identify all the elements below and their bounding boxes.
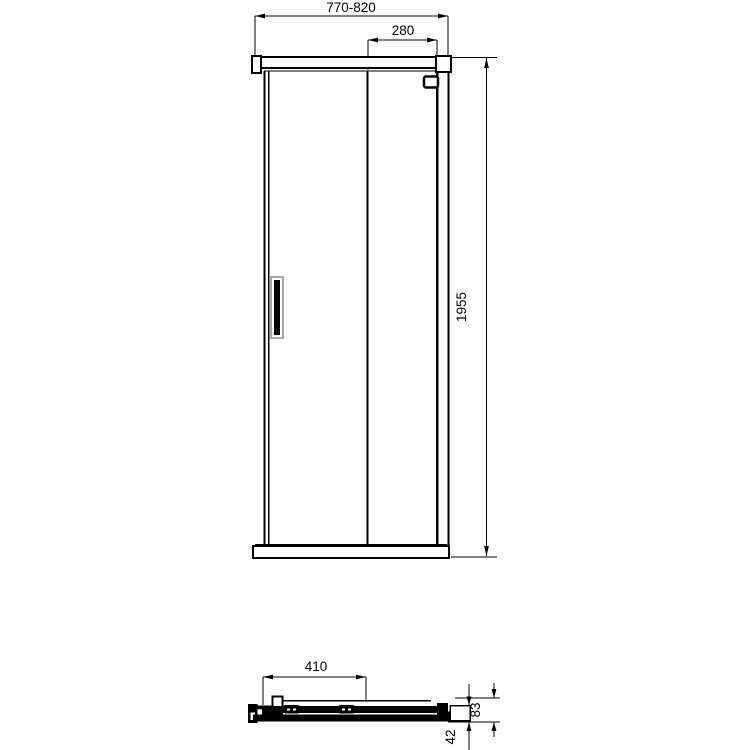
dimension-rail-height-label: 42 bbox=[443, 729, 458, 744]
bottom-rail-section-profile bbox=[248, 697, 470, 724]
shower-door-drawing: 770-820 280 bbox=[0, 0, 750, 750]
top-rail-left-cap bbox=[252, 56, 261, 73]
dimension-total-depth-label: 83 bbox=[468, 702, 483, 717]
dimension-door-panel-label: 280 bbox=[392, 23, 415, 38]
dimension-height-label: 1955 bbox=[454, 292, 469, 322]
dimension-overall-width-label: 770-820 bbox=[326, 0, 376, 15]
front-elevation-view: 770-820 280 bbox=[252, 0, 497, 558]
dimension-height: 1955 bbox=[451, 58, 497, 558]
right-end-cap bbox=[437, 703, 450, 722]
left-wall-profile bbox=[265, 71, 269, 544]
dimension-overall-width: 770-820 bbox=[255, 0, 448, 56]
right-wall-profile bbox=[437, 72, 449, 545]
technical-drawing-canvas: 770-820 280 bbox=[0, 0, 750, 750]
dimension-base-length-label: 410 bbox=[305, 659, 328, 674]
top-rail bbox=[252, 56, 451, 73]
bottom-section-view: 410 bbox=[248, 659, 500, 750]
roller-right bbox=[338, 705, 356, 714]
door-handle bbox=[271, 277, 283, 338]
roller-left bbox=[283, 705, 301, 714]
side-profile-box bbox=[450, 706, 470, 721]
bottom-rail bbox=[253, 545, 449, 559]
top-rail-right-cap bbox=[436, 56, 451, 72]
roller-knob bbox=[424, 77, 438, 88]
